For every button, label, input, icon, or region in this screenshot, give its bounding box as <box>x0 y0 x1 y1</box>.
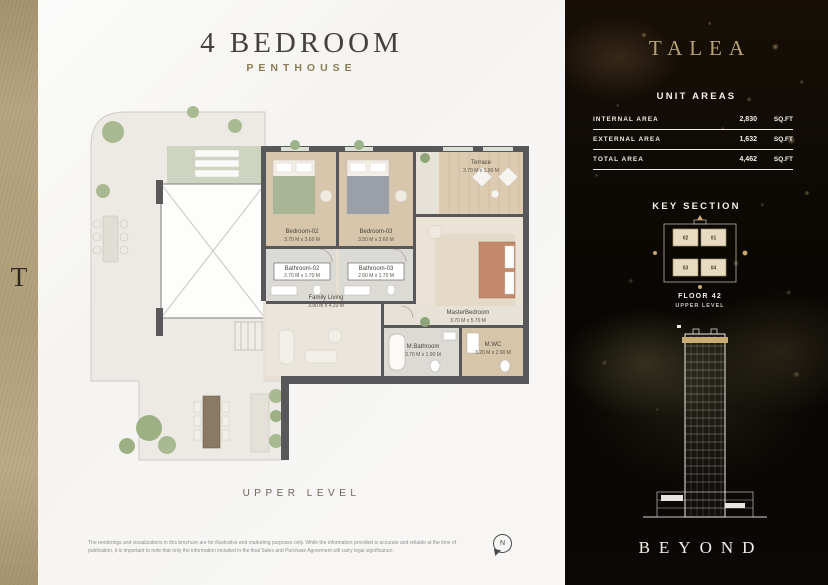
key-section-title: KEY SECTION <box>565 201 828 212</box>
room-label: Bedroom-03 <box>359 229 393 235</box>
key-unit-label: 02 <box>683 236 689 242</box>
room-label: Bathroom-03 <box>359 266 394 272</box>
level-label: UPPER LEVEL <box>38 488 565 499</box>
room-dims: 2.60 M x 1.70 M <box>358 273 394 279</box>
page-title: 4 BEDROOM <box>38 27 565 60</box>
room-dims: 3.70 M x 1.90 M <box>405 352 441 358</box>
area-value: 4,462 <box>715 156 757 163</box>
key-section-diagram: 02 01 03 04 <box>650 214 750 292</box>
area-value: 1,632 <box>715 136 757 143</box>
north-compass-icon: N <box>493 534 512 553</box>
area-label: INTERNAL AREA <box>593 116 715 123</box>
key-unit-label: 04 <box>711 266 717 272</box>
key-units <box>673 229 726 276</box>
info-panel: TALEA UNIT AREAS INTERNAL AREA 2,830 SQ.… <box>565 0 828 585</box>
room-dims: 3.70 M x 5.70 M <box>450 318 486 324</box>
disclaimer-text: The renderings and visualizations in thi… <box>88 539 476 555</box>
unit-areas-title: UNIT AREAS <box>565 91 828 102</box>
hallway <box>384 304 523 328</box>
room-label: Terrace <box>471 160 492 166</box>
floor-plan-svg: Terrace 3.70 M x 1.90 M Bedroom-02 3.70 … <box>83 96 533 480</box>
void-open-to-below <box>156 180 265 336</box>
key-markers <box>653 215 747 289</box>
tower-elevation <box>625 324 785 522</box>
area-label: TOTAL AREA <box>593 156 715 163</box>
room-dims: 3.90 M x 4.20 M <box>308 303 344 309</box>
room-label: Bathroom-02 <box>285 266 320 272</box>
room-label: M.Bathroom <box>407 344 440 350</box>
compass-n-label: N <box>500 540 505 547</box>
room-label: M.WC <box>485 342 502 348</box>
area-value: 2,830 <box>715 116 757 123</box>
room-dims: 2.70 M x 1.70 M <box>284 273 320 279</box>
page-subtitle: PENTHOUSE <box>38 62 565 74</box>
room-label: Bedroom-02 <box>285 229 319 235</box>
main-content: 4 BEDROOM PENTHOUSE <box>38 0 565 585</box>
strip-monogram: T <box>0 262 38 293</box>
beyond-logo: BEYOND <box>565 538 828 558</box>
room-dims: 3.20 M x 2.90 M <box>475 350 511 356</box>
unit-areas-table: INTERNAL AREA 2,830 SQ.FT EXTERNAL AREA … <box>593 110 793 170</box>
key-unit-label: 03 <box>683 266 689 272</box>
gold-side-strip: T <box>0 0 38 585</box>
floor-number-label: FLOOR 42 <box>600 293 800 300</box>
table-row: EXTERNAL AREA 1,632 SQ.FT <box>593 130 793 150</box>
area-unit: SQ.FT <box>757 116 793 123</box>
deck-planks <box>195 150 239 177</box>
room-dims: 3.50 M x 3.60 M <box>358 237 394 243</box>
table-row: INTERNAL AREA 2,830 SQ.FT <box>593 110 793 130</box>
area-unit: SQ.FT <box>757 156 793 163</box>
area-unit: SQ.FT <box>757 136 793 143</box>
brochure-page: T 4 BEDROOM PENTHOUSE <box>0 0 828 585</box>
key-unit-label: 01 <box>711 236 717 242</box>
area-label: EXTERNAL AREA <box>593 136 715 143</box>
floor-level-label: UPPER LEVEL <box>600 303 800 309</box>
highlight-floor-band <box>682 337 728 343</box>
floor-plan: Terrace 3.70 M x 1.90 M Bedroom-02 3.70 … <box>83 96 533 480</box>
talea-logo: TALEA <box>565 36 828 61</box>
room-label: MasterBedroom <box>447 310 490 316</box>
room-label: Family Living <box>308 295 343 301</box>
table-row: TOTAL AREA 4,462 SQ.FT <box>593 150 793 170</box>
room-dims: 3.70 M x 1.90 M <box>463 168 499 174</box>
room-dims: 3.70 M x 3.60 M <box>284 237 320 243</box>
